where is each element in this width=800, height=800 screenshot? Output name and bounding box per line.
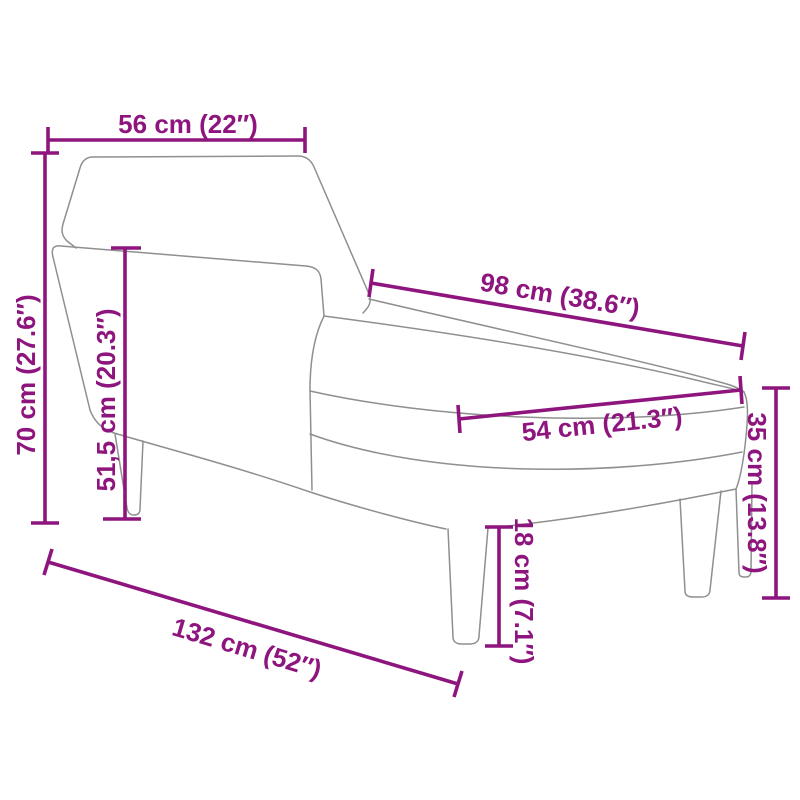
mattress-corner-edge (310, 316, 324, 490)
dim-seat-width-tick-left (458, 405, 460, 433)
dim-backrest-width-label: 56 cm (22″) (118, 109, 258, 139)
dim-seat-length-tick-right (741, 332, 745, 360)
backrest-cushion-outline (62, 156, 370, 313)
dim-backrest-width: 56 cm (22″) (48, 109, 305, 153)
dim-total-length: 132 cm (52″) (44, 549, 462, 697)
dim-armrest-height-label: 51,5 cm (20.3″) (91, 308, 121, 491)
seat-front-edge (324, 316, 744, 392)
dim-seat-width-label: 54 cm (21.3″) (520, 401, 684, 447)
dim-armrest-height: 51,5 cm (20.3″) (91, 248, 141, 519)
base-bottom-edge-left (114, 433, 446, 529)
dim-leg-height: 18 cm (7.1″) (485, 518, 539, 665)
dim-seat-width-tick-right (740, 376, 742, 404)
dim-seat-height-label: 35 cm (13.8″) (742, 412, 772, 573)
dim-total-length-line (48, 562, 458, 684)
dim-seat-length: 98 cm (38.6″) (369, 267, 745, 360)
dim-leg-height-label: 18 cm (7.1″) (509, 518, 539, 665)
dim-total-height-label: 70 cm (27.6″) (11, 294, 41, 455)
dimension-diagram: 56 cm (22″) 70 cm (27.6″) 51,5 cm (20.3″… (0, 0, 800, 800)
dim-seat-length-tick-left (369, 269, 373, 297)
diagram-canvas: 56 cm (22″) 70 cm (27.6″) 51,5 cm (20.3″… (0, 0, 800, 800)
front-right-leg-outline (680, 491, 721, 597)
dim-total-height: 70 cm (27.6″) (11, 153, 59, 523)
dim-seat-height: 35 cm (13.8″) (742, 388, 790, 598)
front-center-leg-outline (448, 528, 488, 644)
dim-seat-width: 54 cm (21.3″) (458, 376, 742, 447)
